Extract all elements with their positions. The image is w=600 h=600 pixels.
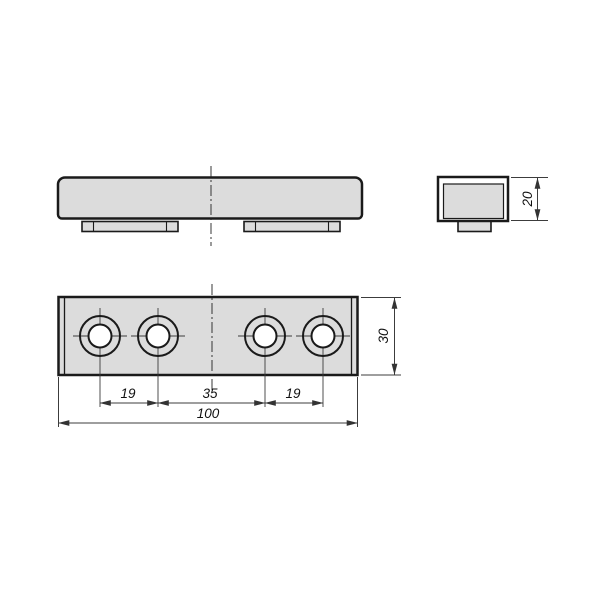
hole-3-bore-circle bbox=[254, 325, 277, 348]
front-view bbox=[58, 166, 362, 246]
front-left-foot bbox=[82, 222, 178, 232]
dim20-label: 20 bbox=[520, 191, 535, 208]
front-body bbox=[58, 178, 362, 219]
dim-overall-width: 100 bbox=[59, 377, 358, 427]
hole-1-bore-circle bbox=[89, 325, 112, 348]
dim19-right-label: 19 bbox=[285, 386, 301, 401]
drawing-canvas: 20 bbox=[0, 0, 600, 600]
technical-drawing: 20 bbox=[0, 0, 600, 600]
side-foot bbox=[458, 221, 491, 232]
side-view: 20 bbox=[438, 177, 548, 232]
hole-2-bore-circle bbox=[147, 325, 170, 348]
dim-hole-spacing: 19 35 19 bbox=[100, 386, 323, 403]
dim100-label: 100 bbox=[197, 406, 220, 421]
side-body-inner-face bbox=[444, 184, 504, 219]
dim19-left-label: 19 bbox=[120, 386, 136, 401]
plan-view: 19 35 19 100 30 bbox=[59, 284, 402, 427]
hole-4-bore-circle bbox=[312, 325, 335, 348]
front-right-foot bbox=[244, 222, 340, 232]
dim35-label: 35 bbox=[202, 386, 218, 401]
dim30-label: 30 bbox=[376, 328, 391, 344]
dim-depth: 30 bbox=[361, 298, 401, 376]
